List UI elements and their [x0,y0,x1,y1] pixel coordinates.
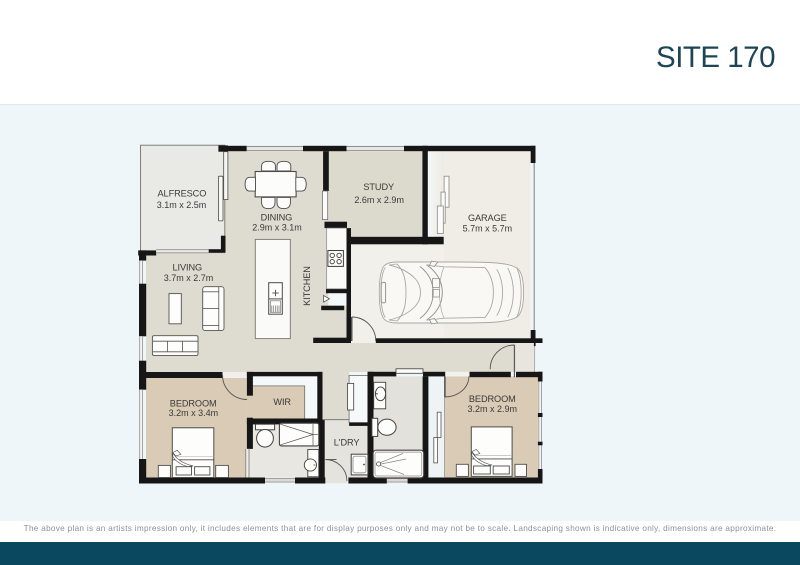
svg-text:3.2m x 2.9m: 3.2m x 2.9m [468,404,518,414]
svg-text:ALFRESCO: ALFRESCO [158,188,207,198]
svg-text:2.9m x 3.1m: 2.9m x 3.1m [252,222,302,232]
svg-text:BEDROOM: BEDROOM [469,394,516,404]
svg-text:LIVING: LIVING [173,263,203,273]
svg-text:L'DRY: L'DRY [334,437,360,447]
svg-text:DINING: DINING [261,212,293,222]
svg-text:5.7m x 5.7m: 5.7m x 5.7m [463,224,513,234]
svg-text:STUDY: STUDY [363,182,394,192]
svg-text:3.7m x 2.7m: 3.7m x 2.7m [164,273,214,283]
svg-text:KITCHEN: KITCHEN [302,266,312,306]
svg-text:2.6m x 2.9m: 2.6m x 2.9m [354,195,404,205]
svg-text:3.1m x 2.5m: 3.1m x 2.5m [157,200,207,210]
svg-text:WIR: WIR [273,397,291,407]
svg-text:3.2m x 3.4m: 3.2m x 3.4m [169,408,219,418]
svg-text:BEDROOM: BEDROOM [170,398,217,408]
svg-text:GARAGE: GARAGE [468,213,507,223]
